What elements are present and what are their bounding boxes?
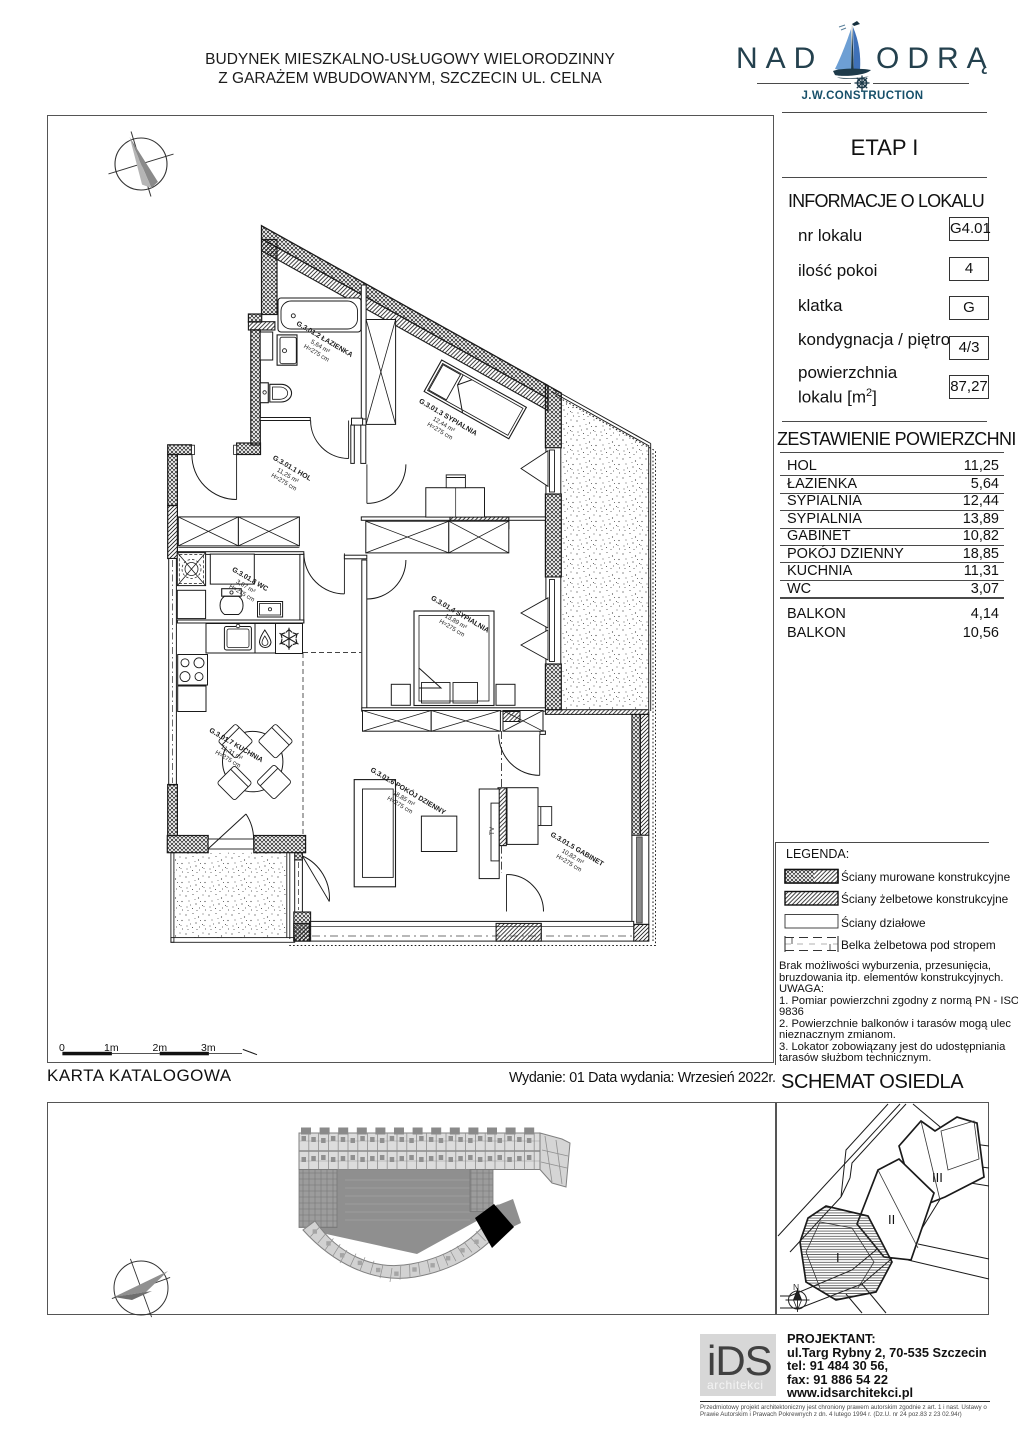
svg-text:TV: TV [489,826,496,835]
svg-text:II: II [888,1212,895,1227]
svg-text:I: I [836,1250,840,1265]
svg-text:III: III [932,1170,943,1185]
